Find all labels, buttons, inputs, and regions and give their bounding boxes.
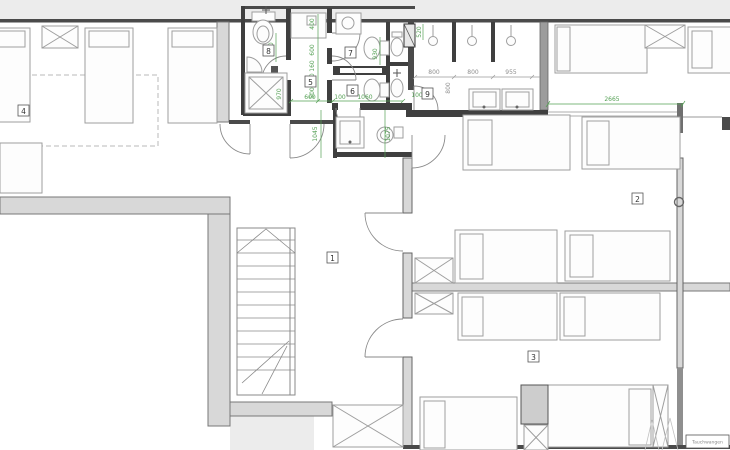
wall-room4-bottom [0,197,230,214]
wall-threshold-left [229,120,250,124]
outside-bottom-left [230,416,314,450]
room-number: 8 [266,47,271,56]
faucet-box [271,66,278,73]
room-number: 1 [330,254,335,263]
wall-wc8-a [286,8,291,60]
dim-text: 2665 [604,96,619,103]
bed [565,231,670,281]
bed [463,115,570,170]
room-label-9: 9 [422,88,433,99]
room-label-4: 4 [18,105,29,116]
room-number: 6 [350,87,355,96]
wall-threshold-right [290,120,335,124]
pillar-shaft [521,385,548,424]
wall-corridor-a [327,8,332,33]
dim-text: 800 [467,69,479,76]
floor-plan-canvas: 400 600 160 360 500 600 100 1060 930 104… [0,0,730,450]
room-label-8: 8 [263,45,274,56]
wall-hall-right-a [403,158,412,213]
wall-corridor-b [327,48,332,64]
room-number: 4 [21,107,26,116]
wardrobe [645,25,685,48]
wall-right-bottom [677,368,683,447]
drain [349,141,352,144]
bed [688,27,730,73]
wardrobe [653,385,668,447]
toilet-bowl [257,26,269,42]
bed [85,28,133,123]
bed [420,397,517,450]
dim-text: 930 [372,48,379,60]
title-block: Tauchwangen [686,435,729,448]
dim-text: 800 [445,82,452,94]
wardrobe [42,26,78,48]
toilet-tank [380,41,389,55]
toilet [391,79,403,97]
wall-hall-bottom [230,402,332,416]
wardrobe [333,405,403,447]
dim-text: 1045 [312,126,319,141]
room-label-6: 6 [347,85,358,96]
wall-corridor-c [327,80,332,103]
room-number: 2 [635,195,640,204]
dim-text: 1060 [357,94,372,101]
title-block-text: Tauchwangen [691,440,723,446]
room-number: 7 [348,49,353,58]
room-label-7: 7 [345,47,356,58]
wall-room4-right [217,22,229,122]
dim-text: 1075 [385,126,392,141]
toilet-tank [380,83,389,97]
bed [458,293,557,340]
toilet [391,38,403,56]
toilet-tank [392,32,402,37]
washer-door [342,17,354,29]
bed [555,25,647,73]
dim-text: 955 [505,69,517,76]
room-number: 5 [308,78,313,87]
wall-bath-block-left [241,6,245,115]
shower-partition-b [491,22,495,62]
dim-text: 160 [309,60,316,72]
wardrobe [524,425,548,450]
shower-partition-a [452,22,456,62]
bed [548,385,653,447]
dim-text: 600 [309,44,316,56]
dim-text: 520 [416,26,423,38]
dim-text: 970 [276,88,283,100]
wardrobe [415,258,453,283]
dim-text: 100 [411,92,423,99]
dim-text: 800 [428,69,440,76]
wall-stub-right-edge [722,117,730,130]
wall-shower-room-right [540,22,548,110]
wall-hall-right-b [403,253,412,318]
wall-minibath-top-a [332,103,338,110]
room-label-5: 5 [305,76,316,87]
stairs [237,228,295,395]
dim-text: 400 [309,18,316,30]
room-number: 9 [425,90,430,99]
room-label-2: 2 [632,193,643,204]
room-number: 3 [531,353,536,362]
room-label-1: 1 [327,252,338,263]
wall-minibath-top-b [360,103,412,110]
wall-top [0,19,730,23]
floor-plan: 400 600 160 360 500 600 100 1060 930 104… [0,0,730,450]
bed [455,230,557,283]
dresser [0,143,42,193]
cistern [394,127,403,138]
dim-text: 600 [304,94,316,101]
outside-top [0,0,730,19]
bed [582,117,680,169]
wall-stair-left [208,214,230,426]
bed [560,293,660,340]
room-label-3: 3 [528,351,539,362]
wall-minibath-bottom [333,152,412,157]
wall-right-mid [677,158,683,368]
wall-hall-right-c [403,357,412,447]
bed [168,28,217,123]
dim-text: 100 [334,94,346,101]
wardrobe [415,293,453,314]
wall-wc7-wc6-inner [340,68,382,73]
